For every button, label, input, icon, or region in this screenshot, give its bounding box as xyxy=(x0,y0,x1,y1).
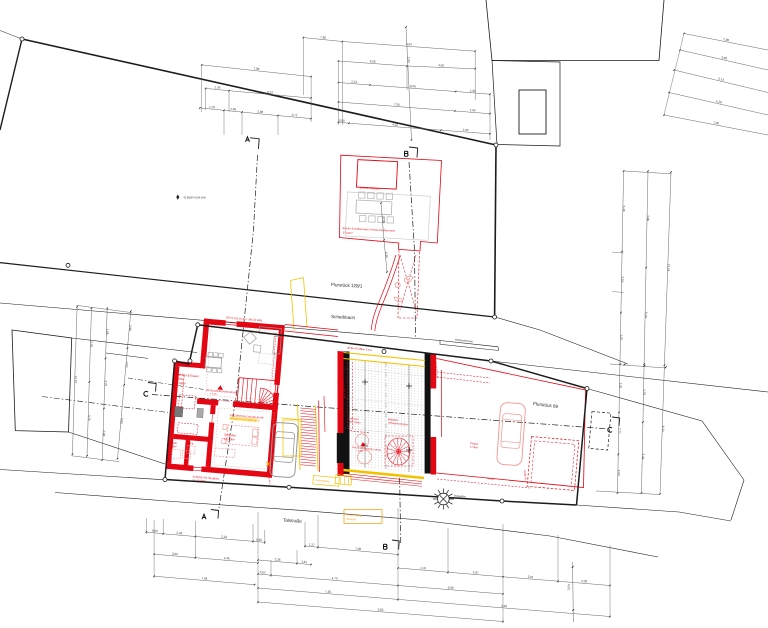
svg-text:5,69: 5,69 xyxy=(448,585,454,589)
svg-text:3,71: 3,71 xyxy=(292,113,299,118)
svg-text:0,90: 0,90 xyxy=(381,217,385,223)
svg-text:2,50: 2,50 xyxy=(125,362,130,369)
svg-text:3,01: 3,01 xyxy=(528,575,534,579)
svg-text:2,10: 2,10 xyxy=(221,535,227,539)
svg-text:2,14: 2,14 xyxy=(351,79,357,83)
svg-text:1,98: 1,98 xyxy=(105,329,109,335)
svg-text:4,30: 4,30 xyxy=(384,252,389,259)
svg-text:0,46: 0,46 xyxy=(256,537,262,542)
svg-text:1,38: 1,38 xyxy=(230,107,237,112)
svg-text:0,90: 0,90 xyxy=(339,118,345,123)
svg-text:2,06m²: 2,06m² xyxy=(169,444,178,449)
svg-text:1,61: 1,61 xyxy=(301,560,308,565)
svg-text:3,80: 3,80 xyxy=(646,215,650,221)
svg-text:7,48: 7,48 xyxy=(201,576,207,581)
svg-text:1,78: 1,78 xyxy=(420,566,426,571)
svg-text:3,79: 3,79 xyxy=(104,380,108,386)
svg-text:3,44: 3,44 xyxy=(641,454,645,460)
svg-text:7,08: 7,08 xyxy=(355,547,362,552)
svg-text:2,98: 2,98 xyxy=(102,430,106,436)
svg-text:3,03: 3,03 xyxy=(617,470,621,476)
svg-text:1,79: 1,79 xyxy=(214,85,221,90)
svg-text:3,75: 3,75 xyxy=(87,415,91,421)
svg-text:2,46: 2,46 xyxy=(176,531,182,536)
svg-text:4,00: 4,00 xyxy=(438,63,444,67)
svg-text:5,05: 5,05 xyxy=(370,59,376,63)
svg-text:9,82: 9,82 xyxy=(378,607,384,611)
svg-text:2,77: 2,77 xyxy=(618,428,622,434)
svg-text:1,54: 1,54 xyxy=(470,108,476,112)
svg-text:7,30: 7,30 xyxy=(394,102,400,106)
svg-text:0,52: 0,52 xyxy=(260,570,267,575)
svg-text:Antritt: Antritt xyxy=(186,441,193,446)
svg-text:2,90: 2,90 xyxy=(407,57,411,63)
svg-text:7,98: 7,98 xyxy=(253,66,260,71)
svg-text:5,04: 5,04 xyxy=(567,584,571,590)
svg-text:5,06: 5,06 xyxy=(410,84,416,88)
svg-text:4,46: 4,46 xyxy=(224,556,230,561)
svg-text:7,35: 7,35 xyxy=(325,589,331,593)
svg-text:3,00: 3,00 xyxy=(172,552,178,557)
svg-text:1,47: 1,47 xyxy=(619,334,623,340)
svg-text:1,90: 1,90 xyxy=(463,128,469,132)
svg-text:7,96: 7,96 xyxy=(320,35,327,40)
svg-text:3,18: 3,18 xyxy=(501,604,507,608)
svg-text:2,98: 2,98 xyxy=(257,110,264,115)
svg-text:9,10: 9,10 xyxy=(661,426,665,432)
svg-text:2,98: 2,98 xyxy=(128,325,133,332)
svg-text:1,81: 1,81 xyxy=(618,383,622,389)
svg-text:2,36: 2,36 xyxy=(275,557,281,562)
svg-text:8,22: 8,22 xyxy=(267,90,274,95)
svg-text:37,50m²: 37,50m² xyxy=(343,231,353,236)
svg-text:3,96: 3,96 xyxy=(120,418,125,425)
svg-text:4,70: 4,70 xyxy=(332,576,338,580)
svg-text:1,17: 1,17 xyxy=(308,542,315,547)
svg-text:Bestand: Bestand xyxy=(346,517,356,522)
svg-text:5,48: 5,48 xyxy=(622,206,626,212)
svg-text:Kellerabgang: Kellerabgang xyxy=(346,513,362,518)
svg-text:1,79: 1,79 xyxy=(209,105,216,110)
svg-text:0,63: 0,63 xyxy=(152,529,159,534)
svg-text:10,97: 10,97 xyxy=(74,376,78,384)
svg-text:1,78: 1,78 xyxy=(642,389,646,395)
svg-text:2,08: 2,08 xyxy=(581,579,587,583)
svg-text:13,04: 13,04 xyxy=(667,264,671,272)
svg-text:42.98264 4.164 üNN: 42.98264 4.164 üNN xyxy=(184,196,206,199)
svg-text:3,79: 3,79 xyxy=(89,341,93,347)
svg-text:2,87: 2,87 xyxy=(473,570,479,575)
svg-text:4,20: 4,20 xyxy=(392,122,398,126)
svg-text:5,10: 5,10 xyxy=(644,312,648,318)
svg-text:+ 1,70: + 1,70 xyxy=(210,392,218,396)
svg-text:3,50: 3,50 xyxy=(620,276,624,282)
